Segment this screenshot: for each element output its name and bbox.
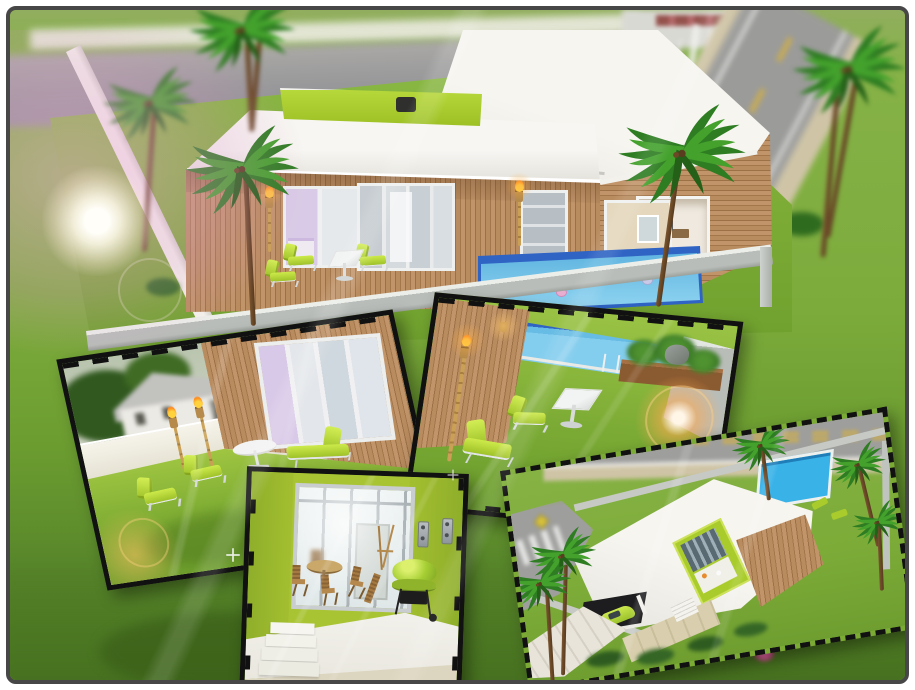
ii-wood-chair	[321, 574, 339, 609]
bathroom-mirror	[637, 215, 659, 243]
roof-grill	[396, 97, 416, 112]
screenshot-page	[0, 0, 915, 690]
li-lounger	[182, 451, 227, 490]
curtain-glimpse	[390, 192, 412, 262]
inset-photo-interior	[239, 466, 469, 684]
mi-pool-ladder	[602, 354, 621, 373]
patio-table	[332, 250, 362, 284]
ii-bbq-grill	[388, 558, 442, 632]
ii-speaker	[417, 521, 429, 547]
main-scene	[6, 6, 909, 684]
ii-speaker	[441, 518, 453, 544]
perimeter-wall-return	[760, 247, 772, 307]
ii-steps	[259, 622, 323, 684]
screenshot-frame	[6, 6, 909, 684]
mi-table	[554, 387, 599, 435]
lens-flare-sun	[42, 166, 152, 276]
lens-flare-ring	[118, 258, 182, 322]
ii-wood-chair	[291, 565, 308, 600]
